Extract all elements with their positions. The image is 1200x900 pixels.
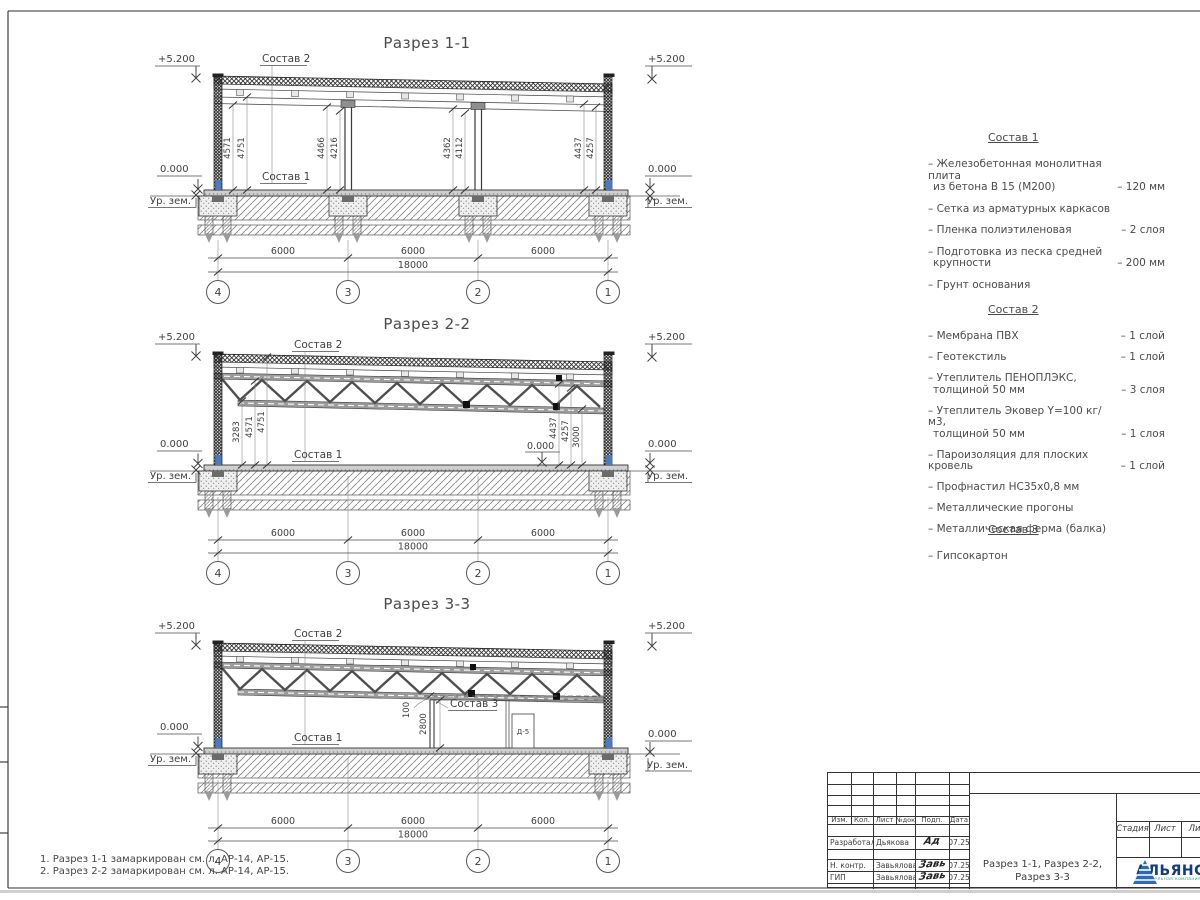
span-dim: 6000 xyxy=(271,816,295,827)
legend-line: – Профнастил НС35х0,8 мм xyxy=(928,482,1079,494)
girder-top xyxy=(214,97,612,105)
legend-item: – Грунт основания xyxy=(928,280,1165,292)
span-dim: 6000 xyxy=(401,528,425,539)
tb-sheet: Лист xyxy=(1149,821,1181,837)
layer-labels-1-1: Состав 2 Состав 1 xyxy=(260,53,310,184)
ground-level-label: Ур. зем. xyxy=(647,760,688,771)
tb-role: ГИП xyxy=(828,871,873,883)
left-wall xyxy=(214,643,222,748)
axis-bubbles-1-1: 4 3 2 1 xyxy=(207,281,620,304)
tb-col-podp: Подп. xyxy=(915,816,949,824)
tb-col-ndok: №док xyxy=(896,816,915,824)
axis-bubble: 1 xyxy=(605,286,612,299)
dim-label: 4466 xyxy=(317,137,327,159)
legend-line: – Пароизоляция для плоских кровель xyxy=(928,450,1117,473)
wall-base-detail xyxy=(216,180,222,190)
dim-label: 4257 xyxy=(561,420,571,442)
axis-bubble: 3 xyxy=(345,286,352,299)
dim-label: 2800 xyxy=(419,713,429,735)
right-wall xyxy=(604,643,612,748)
dim-label: 4437 xyxy=(574,137,584,159)
sostav-1-label: Состав 1 xyxy=(294,449,342,461)
span-dim: 6000 xyxy=(401,246,425,257)
elevation-label: 0.000 xyxy=(160,439,189,450)
dim-label: 4112 xyxy=(455,137,465,159)
mid-zero-label: 0.000 xyxy=(527,441,554,452)
legend-line: – Геотекстиль xyxy=(928,352,1006,364)
legend-line: – Гипсокартон xyxy=(928,551,1008,563)
legend-sostav-3: Состав 3 – Гипсокартон xyxy=(928,523,1165,563)
elevation-label: +5.200 xyxy=(158,332,195,343)
elevation-label: 0.000 xyxy=(160,722,189,733)
floor-slab xyxy=(204,465,628,471)
tb-role: Разработал xyxy=(828,836,873,849)
legend-line: – Сетка из арматурных каркасов xyxy=(928,204,1110,216)
section-title: Разрез 1-1 xyxy=(383,34,470,52)
legend-value: – 200 мм xyxy=(1113,258,1165,270)
total-dim: 18000 xyxy=(398,260,428,271)
legend-title: Состав 3 xyxy=(988,523,1039,536)
legend-value: – 3 слоя xyxy=(1117,385,1165,397)
sostav-3-label: Состав 3 xyxy=(450,698,498,710)
tb-col-list: Лист xyxy=(873,816,896,824)
legend-line: – Пленка полиэтиленовая xyxy=(928,225,1072,237)
legend-item: – Геотекстиль – 1 слой xyxy=(928,352,1165,364)
dim-label: 4437 xyxy=(549,417,559,439)
legend-title: Состав 2 xyxy=(988,303,1039,316)
signature: Ад xyxy=(923,835,941,847)
legend-item: – Пароизоляция для плоских кровель – 1 с… xyxy=(928,450,1165,473)
door-label: Д-5 xyxy=(517,728,529,736)
axis-bubble: 2 xyxy=(475,286,482,299)
sostav-2-label: Состав 2 xyxy=(294,339,342,351)
elevation-label: 0.000 xyxy=(648,439,677,450)
signature: Завь xyxy=(918,858,947,871)
legend-value: – 1 слой xyxy=(1117,461,1165,473)
dim-label: 3000 xyxy=(572,426,582,448)
legend-line: – Утеплитель ПЕНОПЛЭКС, xyxy=(928,373,1077,385)
elevation-label: 0.000 xyxy=(648,729,677,740)
axis-bubble: 2 xyxy=(475,855,482,868)
truss-top-chord xyxy=(214,662,612,676)
truss-2-2 xyxy=(214,373,612,414)
ground-level-label: Ур. зем. xyxy=(647,196,688,207)
elevation-label: +5.200 xyxy=(158,54,195,65)
legend-value: – 1 слоя xyxy=(1117,429,1165,441)
legend-line: – Утеплитель Эковер Y=100 кг/м3, xyxy=(928,406,1117,429)
dim-label: 100 xyxy=(402,702,412,718)
sheet-notes: 1. Разрез 1-1 замаркирован см. л. АР-14,… xyxy=(40,854,289,878)
sostav-1-label: Состав 1 xyxy=(294,732,342,744)
dimension-chain-3-3: 6000 6000 6000 18000 xyxy=(208,816,618,845)
axis-bubble: 2 xyxy=(475,567,482,580)
wall-base-detail xyxy=(216,738,222,748)
roof-1-1 xyxy=(214,76,612,112)
dimension-chain-1-1: 6000 6000 6000 18000 xyxy=(208,246,618,276)
ground-level-label: Ур. зем. xyxy=(150,471,191,482)
dim-label: 4571 xyxy=(245,416,255,438)
legend-item: – Пленка полиэтиленовая – 2 слоя xyxy=(928,225,1165,237)
elevation-label: +5.200 xyxy=(648,332,685,343)
axis-bubble: 1 xyxy=(605,855,612,868)
tb-signature: Ад xyxy=(915,834,949,849)
legend-value: – 2 слоя xyxy=(1117,225,1165,237)
wall-base-detail xyxy=(216,455,222,465)
sostav-2-label: Состав 2 xyxy=(262,53,310,65)
span-dim: 6000 xyxy=(531,246,555,257)
tb-stage: Стадия xyxy=(1116,821,1149,837)
legend-value: – 1 слой xyxy=(1117,352,1165,364)
axis-bubble: 3 xyxy=(345,567,352,580)
tb-name: Завьялова xyxy=(874,871,915,883)
legend-line: толщиной 50 мм xyxy=(928,429,1117,441)
right-wall xyxy=(604,76,612,190)
dim-label: 4257 xyxy=(586,137,596,159)
section-3-3: Разрез 3-3 xyxy=(148,595,692,873)
legend-line: – Металлические прогоны xyxy=(928,503,1073,515)
company-logo: АЛЬЯНС строительная компания xyxy=(1132,859,1200,887)
tb-col-data: Дата xyxy=(949,816,969,824)
legend-item: – Сетка из арматурных каркасов xyxy=(928,204,1165,216)
floor-slab xyxy=(204,748,628,754)
note-line: 1. Разрез 1-1 замаркирован см. л. АР-14,… xyxy=(40,854,289,866)
legend-line: крупности xyxy=(928,258,1102,270)
legend-item: – Металлические прогоны xyxy=(928,503,1165,515)
span-dim: 6000 xyxy=(271,246,295,257)
sostav-1-label: Состав 1 xyxy=(262,171,310,183)
span-dim: 6000 xyxy=(531,528,555,539)
span-dim: 6000 xyxy=(271,528,295,539)
left-wall xyxy=(214,354,222,465)
legend-item: – Подготовка из песка среднейкрупности –… xyxy=(928,247,1165,270)
signature: Завь xyxy=(918,870,947,883)
dim-label: 4216 xyxy=(330,137,340,159)
document-title-line: Разрез 3-3 xyxy=(969,872,1116,885)
wall-base-detail xyxy=(606,180,612,190)
tb-name: Дьякова xyxy=(874,836,915,849)
logo-triangle-icon xyxy=(1132,859,1158,885)
tb-date: 07.25 xyxy=(949,836,969,849)
section-title: Разрез 2-2 xyxy=(383,315,470,333)
dimension-chain-2-2: 6000 6000 6000 18000 xyxy=(208,528,618,557)
section-2-2: Разрез 2-2 xyxy=(148,315,692,585)
dim-label: 3283 xyxy=(232,421,242,443)
legend-sostav-2: Состав 2 – Мембрана ПВХ – 1 слой – Геоте… xyxy=(928,303,1165,536)
elevation-label: 0.000 xyxy=(160,164,189,175)
tb-col-kol: Кол. xyxy=(851,816,873,824)
wall-base-detail xyxy=(606,738,612,748)
floor-slab xyxy=(204,190,628,196)
wall-base-detail xyxy=(606,455,612,465)
ground-level-label: Ур. зем. xyxy=(150,196,191,207)
legend-item: – Гипсокартон xyxy=(928,551,1165,563)
elevation-label: 0.000 xyxy=(648,164,677,175)
span-dim: 6000 xyxy=(401,816,425,827)
legend-line: – Грунт основания xyxy=(928,280,1030,292)
legend-item: – Железобетонная монолитная плитаиз бето… xyxy=(928,159,1165,194)
legend-item: – Мембрана ПВХ – 1 слой xyxy=(928,331,1165,343)
note-line: 2. Разрез 2-2 замаркирован см. л. АР-14,… xyxy=(40,866,289,878)
section-1-1: Разрез 1-1 xyxy=(148,34,692,304)
partition-dimensions: 2800 100 xyxy=(402,693,444,752)
legend-item: – Утеплитель Эковер Y=100 кг/м3,толщиной… xyxy=(928,406,1165,441)
legend-item: – Профнастил НС35х0,8 мм xyxy=(928,482,1165,494)
tb-signature: Завь xyxy=(915,870,949,883)
legend-line: толщиной 50 мм xyxy=(928,385,1077,397)
dim-label: 4751 xyxy=(237,137,247,159)
truss-3-3 xyxy=(214,662,612,703)
tb-name: Завьялова xyxy=(874,859,915,871)
tb-date: 07.25 xyxy=(949,871,969,883)
legend-value: – 1 слой xyxy=(1117,331,1165,343)
axis-bubble: 3 xyxy=(345,855,352,868)
tb-role: Н. контр. xyxy=(828,859,873,871)
legend-sostav-1: Состав 1 – Железобетонная монолитная пли… xyxy=(928,131,1165,291)
tb-col-izm: Изм. xyxy=(828,816,851,824)
tb-sheets: Листов xyxy=(1181,821,1200,837)
document-title: Разрез 1-1, Разрез 2-2, Разрез 3-3 xyxy=(969,859,1116,887)
truss-top-chord xyxy=(214,373,612,387)
axis-bubble: 4 xyxy=(215,286,222,299)
total-dim: 18000 xyxy=(398,542,428,553)
axis-bubbles-2-2: 4 3 2 1 xyxy=(207,562,620,585)
dim-label: 4571 xyxy=(223,137,233,159)
legend-line: из бетона В 15 (М200) xyxy=(928,182,1113,194)
document-title-line: Разрез 1-1, Разрез 2-2, xyxy=(969,859,1116,872)
elevation-label: +5.200 xyxy=(648,54,685,65)
span-dim: 6000 xyxy=(531,816,555,827)
total-dim: 18000 xyxy=(398,830,428,841)
elevation-label: +5.200 xyxy=(648,621,685,632)
girder-bottom xyxy=(214,104,612,112)
section-title: Разрез 3-3 xyxy=(383,595,470,613)
elevation-label: +5.200 xyxy=(158,621,195,632)
legend-line: – Мембрана ПВХ xyxy=(928,331,1019,343)
dim-label: 4362 xyxy=(443,137,453,159)
left-wall xyxy=(214,76,222,190)
tb-date: 07.25 xyxy=(949,859,969,871)
ground-level-label: Ур. зем. xyxy=(150,754,191,765)
legend-value: – 120 мм xyxy=(1113,182,1165,194)
right-wall xyxy=(604,354,612,465)
sostav-2-label: Состав 2 xyxy=(294,628,342,640)
axis-bubble: 1 xyxy=(605,567,612,580)
legend-item: – Утеплитель ПЕНОПЛЭКС,толщиной 50 мм – … xyxy=(928,373,1165,396)
title-block: Изм. Кол. Лист №док Подп. Дата Разработа… xyxy=(827,772,1200,888)
legend-line: – Железобетонная монолитная плита xyxy=(928,159,1113,182)
dim-label: 4751 xyxy=(257,411,267,433)
drawing-sheet: Разрез 1-1 xyxy=(0,0,1200,900)
axis-bubble: 4 xyxy=(215,567,222,580)
legend-title: Состав 1 xyxy=(988,131,1039,144)
